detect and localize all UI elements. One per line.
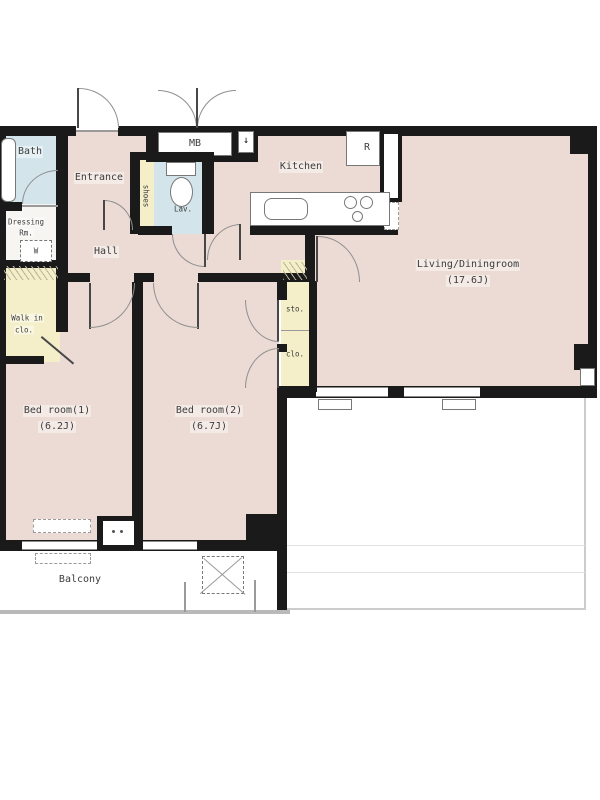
wall-bed2-right-lower [277,386,287,614]
balcony-label: Balcony [58,574,102,586]
washer-label: W [33,247,40,256]
balcony-louver [35,553,91,564]
kitchen-door-panel [239,224,241,260]
bed1-label: Bed room(1) [23,405,91,417]
bedroom1-floor-left [0,362,60,544]
terrace-line-2 [287,572,585,573]
bed2-window [143,541,197,550]
stove-burner-3 [352,211,363,222]
kitchen-sink [264,198,308,220]
wall-lav-top [138,152,212,160]
wall-bedroom-divider [132,282,143,544]
wall-lav-right [202,152,214,234]
storage-top-hatch [283,262,307,280]
dressing-label-2: Rm. [18,229,34,238]
storage-divider [281,330,309,331]
balcony-edge-bottom [0,610,290,614]
pipe-space [384,134,398,198]
living-window-2 [404,387,480,397]
wall-bath-bottom [0,202,22,211]
wall-strip-right [309,281,317,392]
wall-top-main [258,126,597,136]
balcony-divider-1 [184,582,186,612]
corner-notch [580,368,595,386]
meterbox-door-panel [196,88,198,128]
walkin-shelf-hatch [4,266,58,280]
window-vent-1 [318,399,352,410]
wall-top-entrance-right [118,126,148,136]
balcony-pillar-inner [103,521,134,545]
kitchen-label: Kitchen [279,161,323,173]
pillar-dot-2 [120,530,123,533]
entry-arrow: ↓ [242,135,250,147]
lav-label: Lav. [173,205,193,214]
bathtub [1,138,16,202]
balcony-divider-2 [254,580,256,612]
bed1-window [22,541,97,550]
wall-kitchen-bottom [250,226,398,235]
stove-burner-2 [360,196,373,209]
stove-burner-1 [344,196,357,209]
bed2-label: Bed room(2) [175,405,243,417]
walkin-label-2: clo. [14,326,34,335]
bath-label: Bath [17,146,43,158]
floor-plan: Bath Entrance Dressing Rm. W Walk in clo… [0,0,600,800]
entrance-hall-door-panel [103,200,105,230]
bed1-ac-unit [33,519,91,533]
walkin-label: Walk in [10,314,44,323]
living-area-label: (17.6J) [446,275,490,287]
dressing-label: Dressing [7,218,45,227]
living-window-1 [316,387,388,397]
terrace-line-1 [287,545,585,546]
wall-hall-bottom-1 [56,273,90,282]
entrance-threshold [76,130,120,132]
window-vent-2 [442,399,476,410]
wall-living-right-corner [574,344,597,370]
living-label: Living/Diningroom [416,259,520,271]
toilet-bowl [170,177,193,207]
terrace-edge-bottom [287,608,586,610]
wall-walkin-bottom [0,356,44,364]
terrace-edge-right [584,398,586,610]
bed1-area-label: (6.2J) [38,421,76,433]
meterbox-door-right-arc [197,90,236,128]
bed2-area-label: (6.7J) [190,421,228,433]
wall-lav-bottom [138,226,172,235]
wall-hall-bottom-2 [134,273,154,282]
meterbox-label: MB [188,138,202,150]
shoes-label: shoes [141,185,152,208]
meterbox-door-left-arc [158,90,197,128]
pillar-dot-1 [112,530,115,533]
clo-label: clo. [285,350,305,359]
lav-door-panel [204,234,206,267]
toilet-tank [166,162,196,176]
entrance-label: Entrance [74,172,124,184]
fridge-label: R [363,142,371,154]
bath-door-sill [22,205,58,207]
sto-label: sto. [285,305,305,314]
entrance-door-arc [79,88,119,128]
hall-label: Hall [93,246,119,258]
